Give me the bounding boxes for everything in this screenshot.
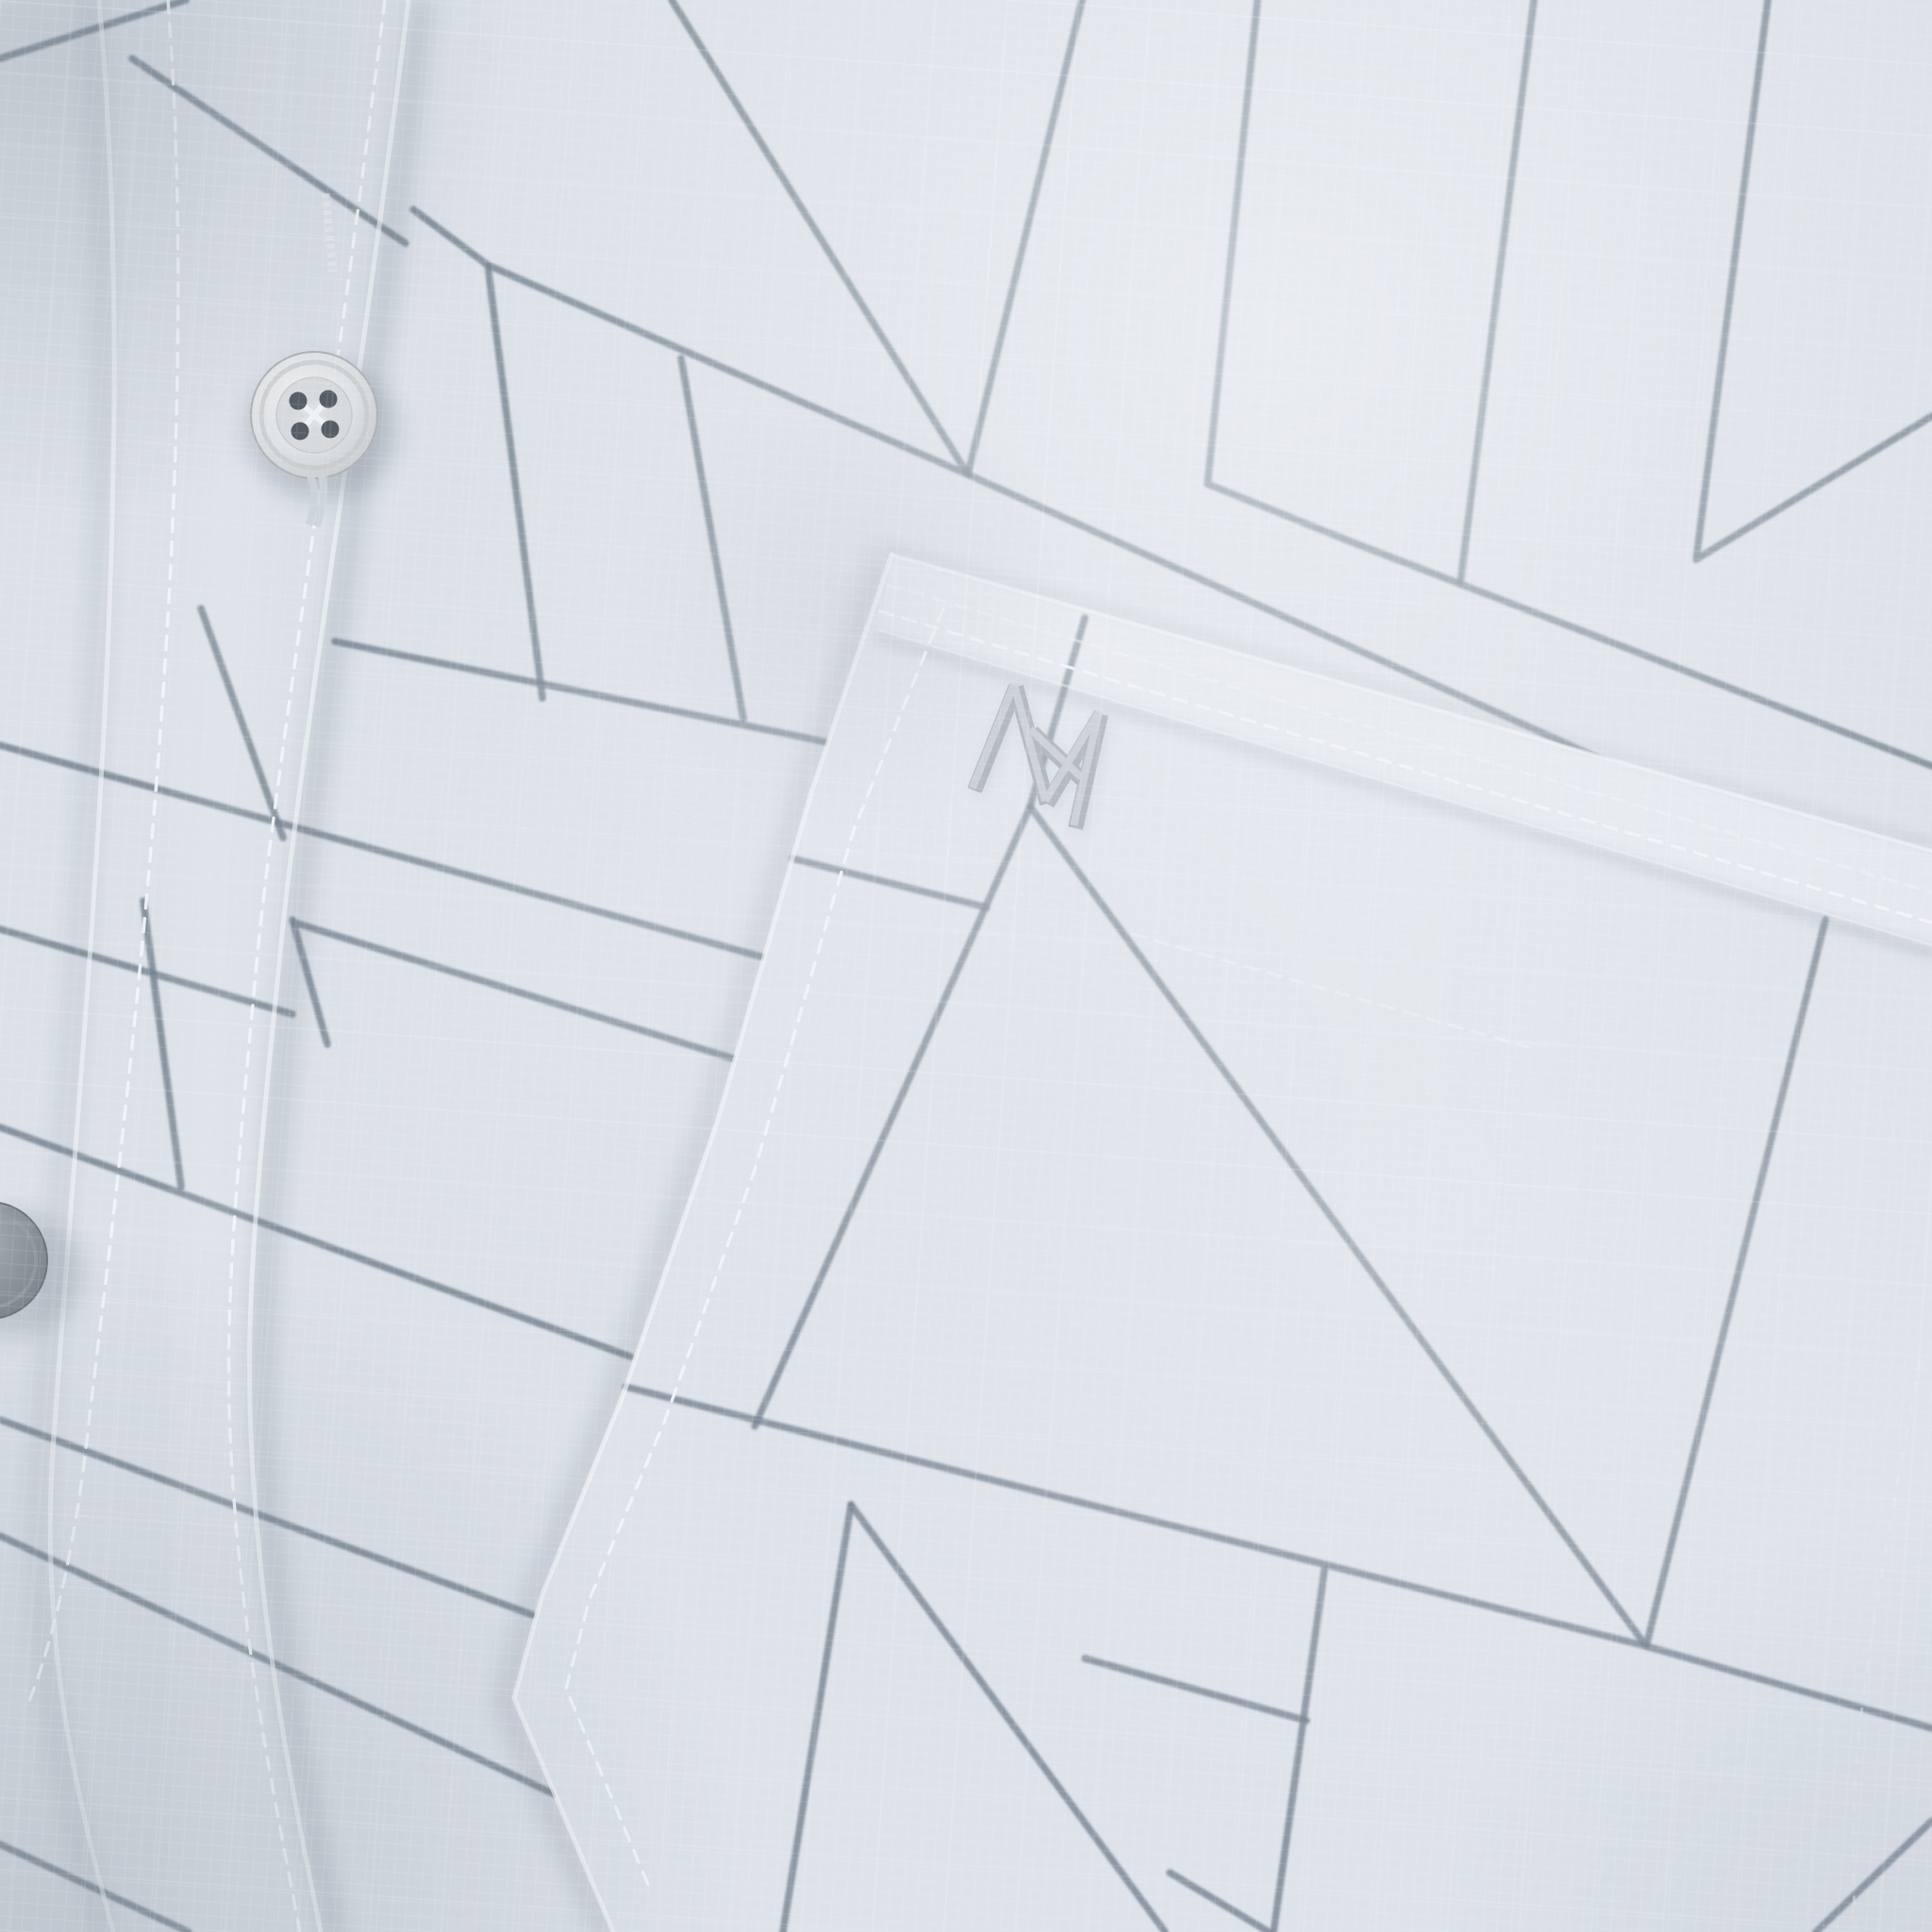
shirt-photo-canvas: M: [0, 0, 1932, 1932]
shirt-photo: Close-up photograph of a pale grey ripst…: [0, 0, 1932, 1932]
fabric-texture: [0, 0, 1932, 1932]
